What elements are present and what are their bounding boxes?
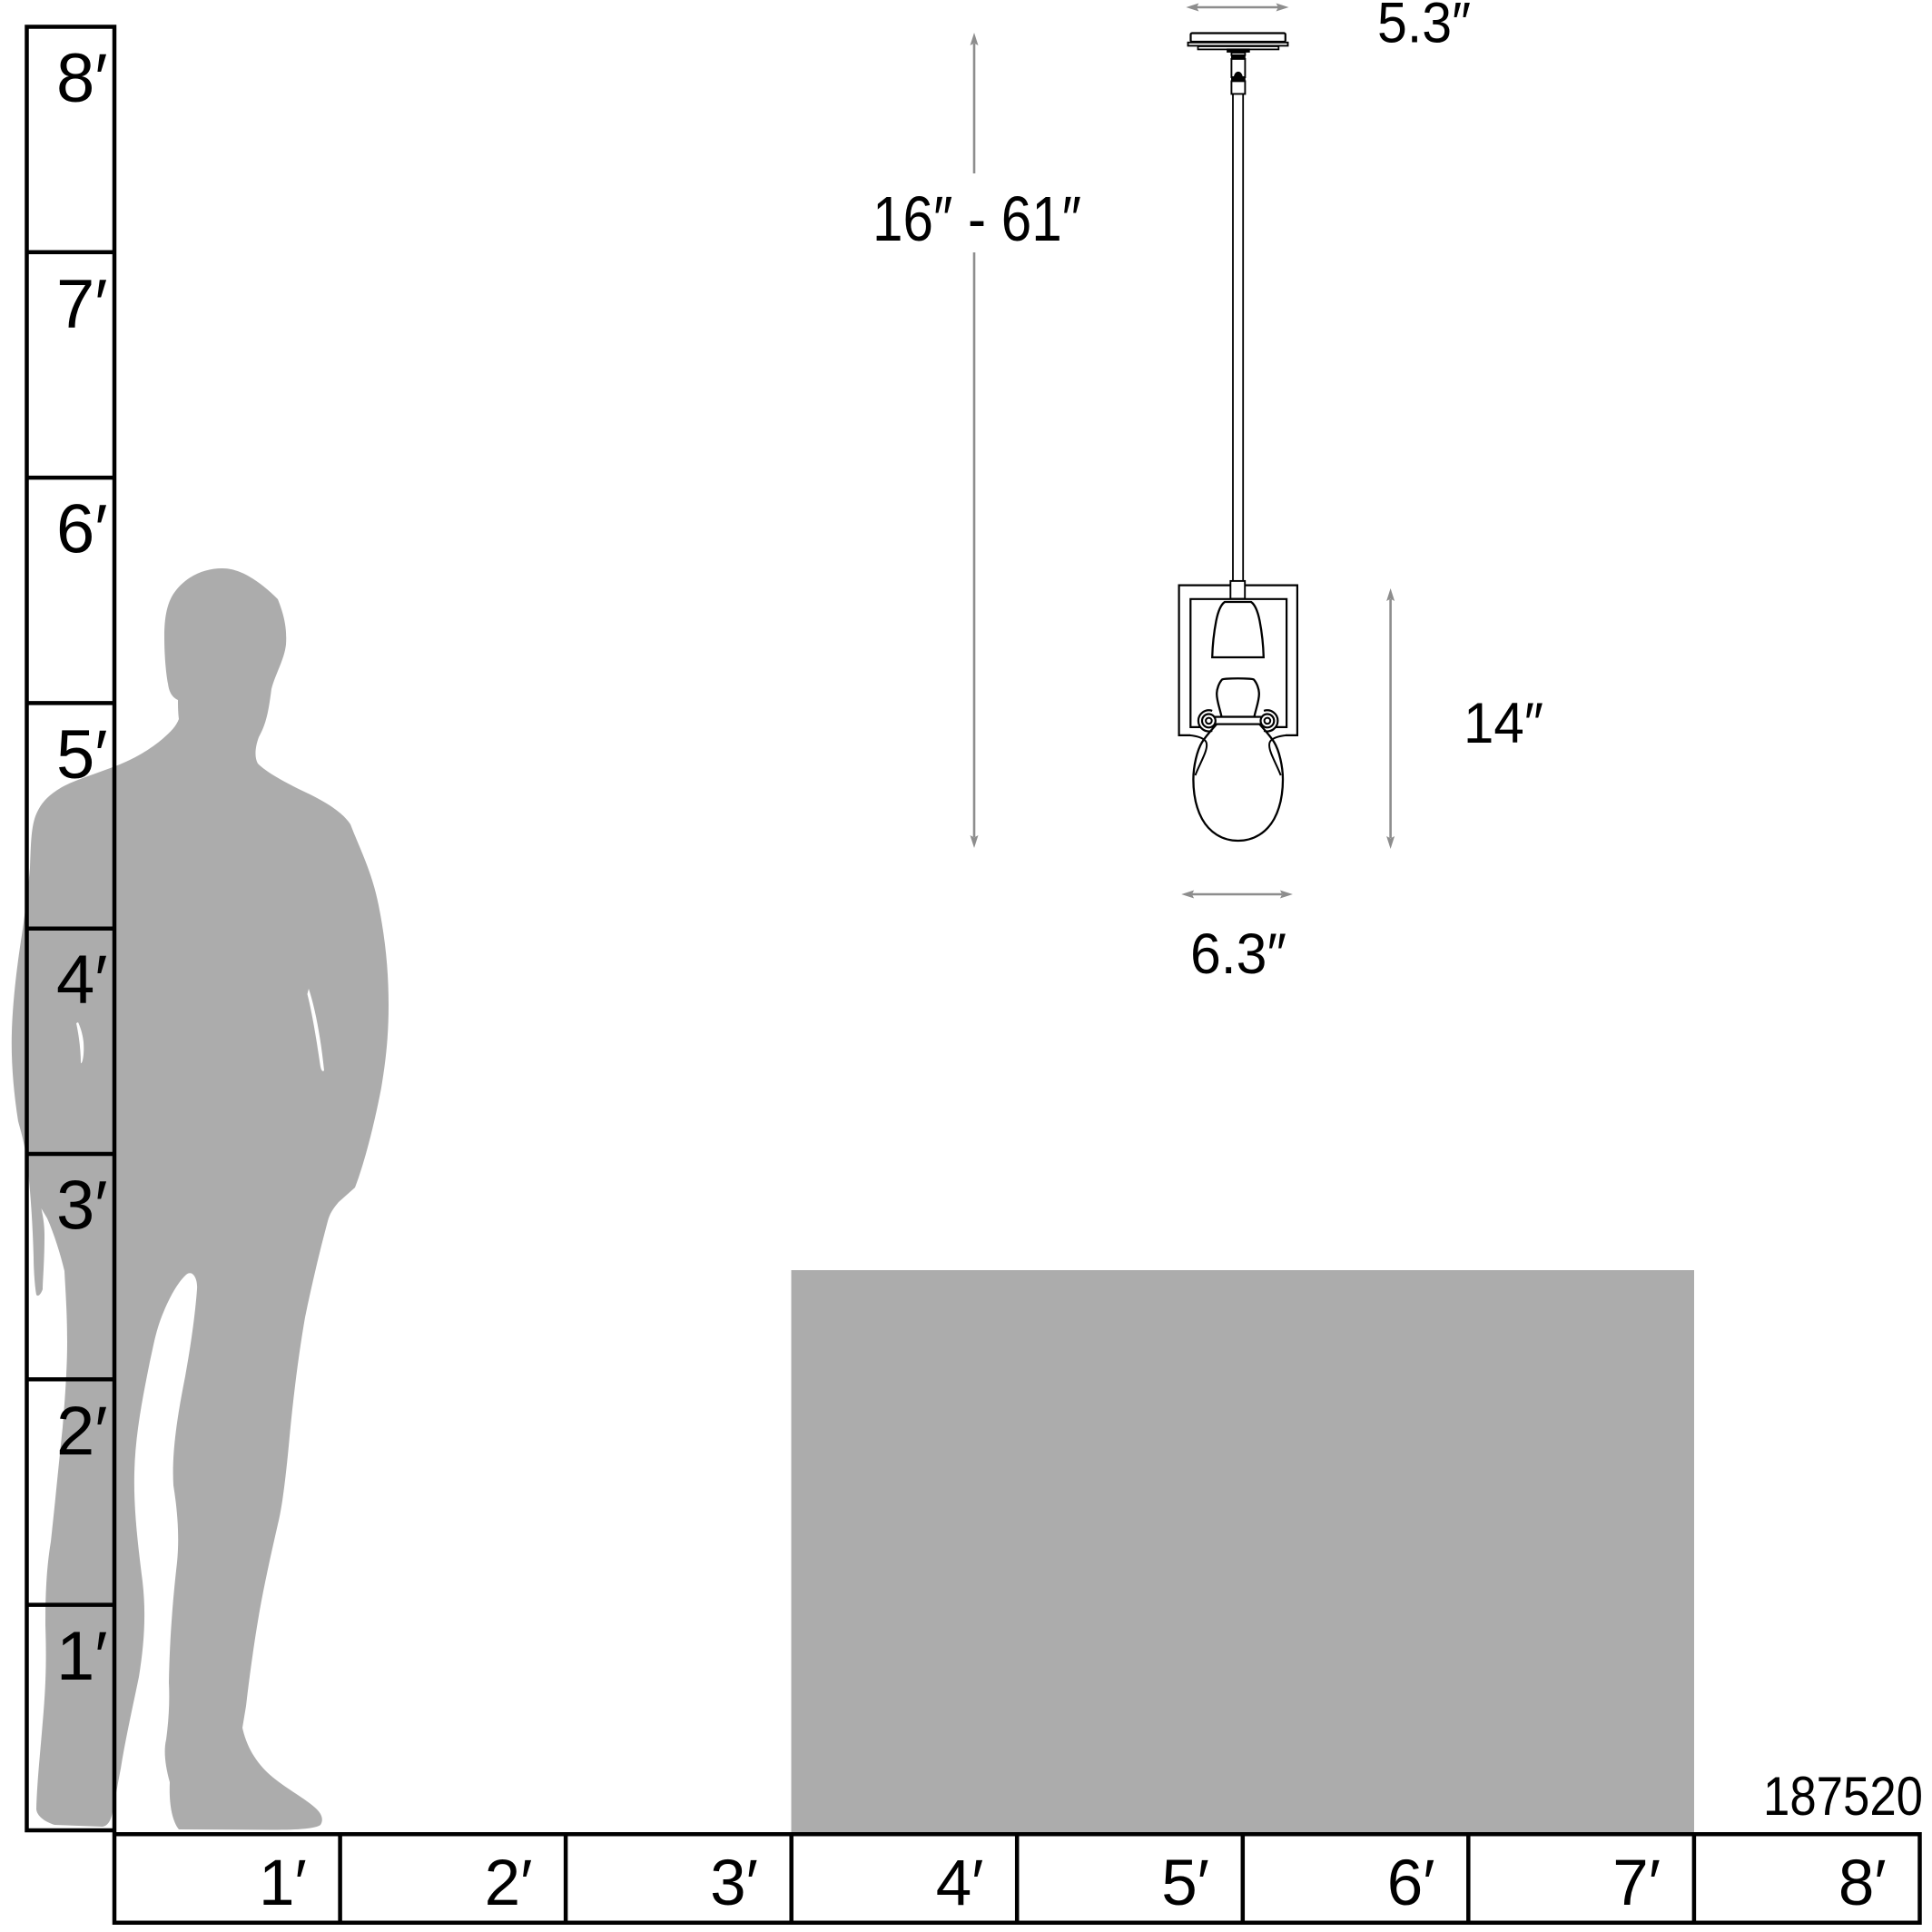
svg-text:3′: 3′ (710, 1848, 758, 1919)
svg-text:5′: 5′ (56, 716, 108, 793)
svg-text:4′: 4′ (56, 941, 108, 1019)
svg-text:4′: 4′ (936, 1848, 984, 1919)
svg-text:5.3″: 5.3″ (1377, 0, 1471, 55)
svg-text:3′: 3′ (56, 1168, 108, 1245)
svg-text:8′: 8′ (56, 40, 108, 117)
svg-text:5′: 5′ (1161, 1848, 1209, 1919)
svg-text:187520: 187520 (1763, 1766, 1923, 1827)
svg-text:2′: 2′ (485, 1848, 533, 1919)
svg-text:1′: 1′ (56, 1618, 108, 1695)
svg-text:6.3″: 6.3″ (1190, 922, 1286, 986)
svg-text:14″: 14″ (1464, 692, 1543, 755)
svg-text:1′: 1′ (259, 1848, 307, 1919)
svg-text:8′: 8′ (1838, 1848, 1887, 1919)
svg-text:7′: 7′ (56, 265, 108, 342)
svg-text:16″ - 61″: 16″ - 61″ (872, 183, 1081, 254)
svg-text:7′: 7′ (1612, 1848, 1661, 1919)
svg-text:6′: 6′ (1387, 1848, 1435, 1919)
svg-text:6′: 6′ (56, 491, 108, 568)
svg-text:2′: 2′ (56, 1393, 108, 1470)
